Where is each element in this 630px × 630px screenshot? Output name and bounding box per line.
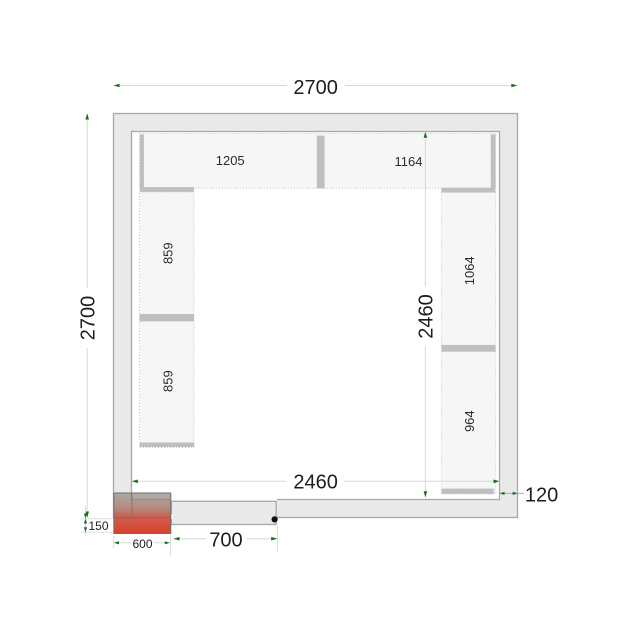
svg-text:964: 964 <box>462 410 477 432</box>
svg-text:1164: 1164 <box>395 154 423 169</box>
svg-text:2460: 2460 <box>293 472 338 494</box>
svg-text:1064: 1064 <box>462 256 477 285</box>
svg-text:859: 859 <box>161 370 176 392</box>
svg-text:600: 600 <box>132 537 152 551</box>
svg-text:1205: 1205 <box>216 153 245 168</box>
svg-text:2460: 2460 <box>416 294 438 339</box>
svg-text:150: 150 <box>89 519 109 533</box>
svg-text:2700: 2700 <box>78 296 100 341</box>
svg-text:120: 120 <box>525 485 558 507</box>
svg-text:2700: 2700 <box>293 77 338 99</box>
svg-text:859: 859 <box>161 242 176 264</box>
svg-text:700: 700 <box>209 530 242 552</box>
